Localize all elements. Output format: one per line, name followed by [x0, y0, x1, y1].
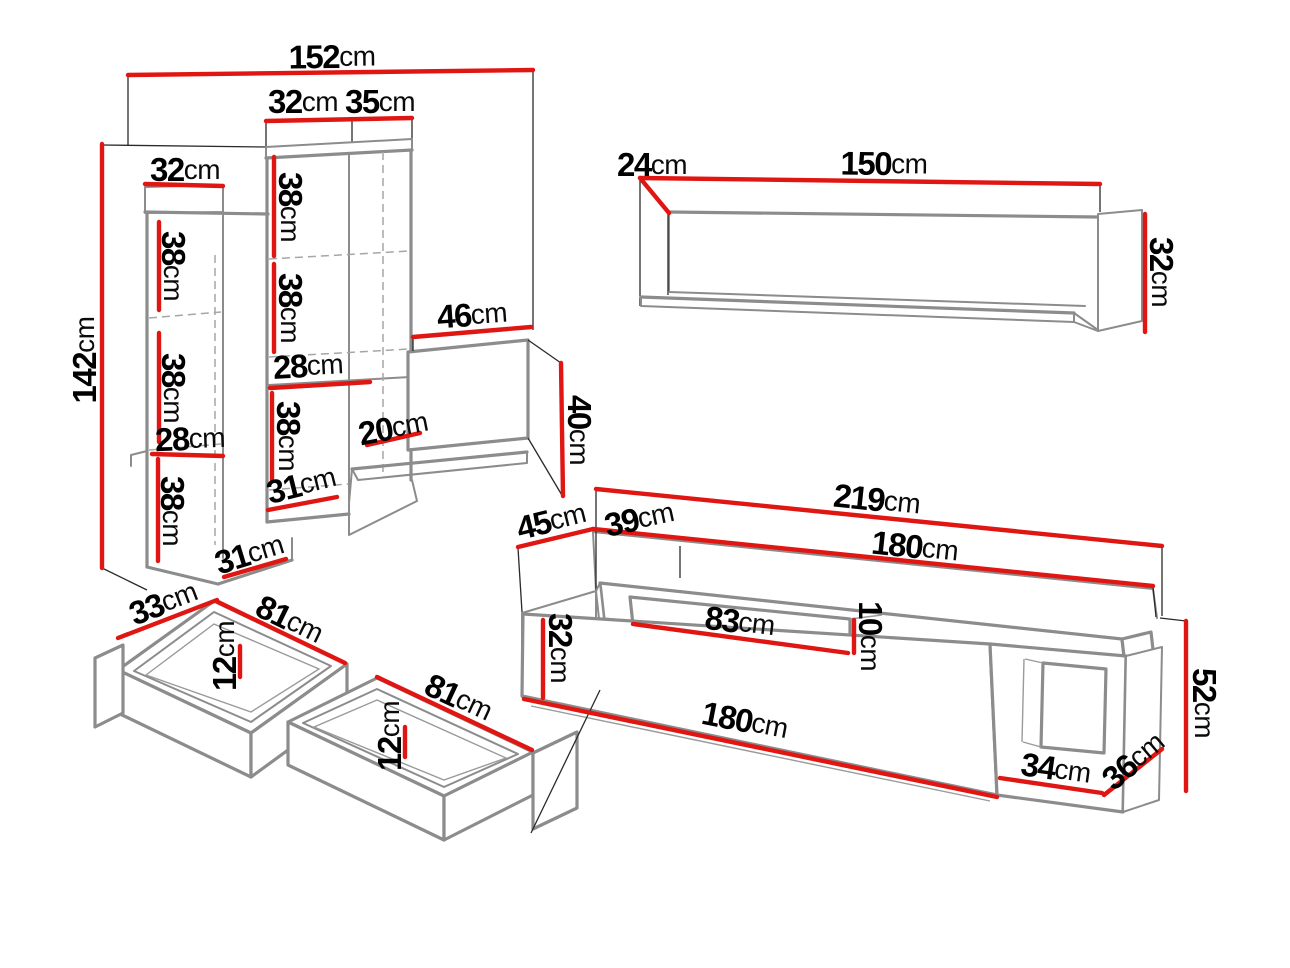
- dim-unit: cm: [737, 605, 777, 640]
- dim-unit: cm: [276, 206, 307, 242]
- dim-unit: cm: [470, 296, 508, 329]
- dim-line-24: [640, 178, 669, 213]
- wall-shelf-drawing: [640, 178, 1145, 332]
- furniture-dimension-diagram: 152cm 32cm 35cm 32cm 142cm 38cm 38cm 28c…: [0, 0, 1290, 968]
- dim-unit: cm: [306, 348, 344, 381]
- dim-num: 32: [150, 151, 185, 188]
- dim-num: 38: [273, 172, 310, 207]
- dim-unit: cm: [274, 435, 305, 471]
- dim-label-shelving-overall-width: 152cm: [288, 37, 375, 75]
- dim-label-shelf-depth-24: 24cm: [617, 146, 687, 183]
- compartment-opening: [1041, 663, 1106, 753]
- dim-num: 219: [832, 476, 887, 518]
- dim-unit: cm: [920, 531, 959, 566]
- dim-unit: cm: [1147, 271, 1178, 307]
- dim-label-shelf-height: 38cm: [273, 273, 310, 343]
- dim-unit: cm: [158, 510, 189, 546]
- back-panel-top-edge: [669, 212, 1098, 217]
- dim-num: 46: [436, 296, 473, 335]
- dim-num: 32: [543, 613, 580, 648]
- dim-num: 180: [870, 523, 924, 565]
- dim-num: 142: [66, 352, 103, 404]
- dim-unit: cm: [379, 86, 415, 117]
- drawer1-front-panel: [95, 645, 123, 727]
- dim-label-shelf-height-32: 32cm: [1144, 237, 1181, 307]
- dim-num: 28: [154, 420, 190, 458]
- shelf-hidden-line: [269, 251, 410, 259]
- dim-label-shelf-height: 38cm: [271, 401, 308, 471]
- dim-label-left-column-width: 32cm: [150, 151, 220, 188]
- dim-num: 32: [1144, 237, 1181, 272]
- dim-num: 24: [617, 146, 653, 183]
- extension-line: [1160, 618, 1186, 621]
- dim-label-drawer-height-12: 12cm: [371, 701, 408, 771]
- dim-num: 12: [371, 736, 408, 771]
- dim-num: 38: [273, 273, 310, 308]
- dim-unit: cm: [635, 496, 677, 534]
- dim-label-shelf-width-150: 150cm: [840, 144, 927, 182]
- left-column-top-edge: [145, 212, 268, 214]
- left-column-top-plate: [145, 185, 223, 213]
- dim-unit: cm: [276, 307, 307, 343]
- dim-num: 38: [271, 401, 308, 436]
- dim-unit: cm: [374, 701, 405, 737]
- dim-label-slot-height-10: 10cm: [853, 601, 890, 671]
- shelf-top-edge: [641, 297, 1074, 313]
- dim-unit: cm: [302, 86, 338, 117]
- dim-label-drawer-height-12: 12cm: [206, 621, 243, 691]
- dim-num: 38: [155, 476, 192, 511]
- dim-label-shelf-depth-28: 28cm: [154, 418, 225, 457]
- dim-num: 28: [272, 347, 309, 386]
- dim-unit: cm: [565, 429, 596, 465]
- dim-label-panel-height-40: 40cm: [562, 395, 599, 465]
- dim-unit: cm: [339, 40, 376, 71]
- dim-unit: cm: [882, 484, 921, 519]
- shelf-hidden-line: [149, 312, 221, 318]
- left-column-ledge: [131, 451, 147, 466]
- dim-num: 38: [156, 353, 193, 388]
- dim-unit: cm: [69, 317, 100, 353]
- drawers-drawing: [95, 600, 577, 840]
- dim-label-shelf-depth-28: 28cm: [272, 345, 344, 386]
- dim-label-shelf-height: 38cm: [273, 172, 310, 242]
- right-column-bottom-edge: [267, 514, 349, 522]
- dim-label-top-width-35: 35cm: [345, 83, 415, 120]
- dim-unit: cm: [209, 621, 240, 657]
- dim-label-overall-height: 142cm: [66, 317, 103, 404]
- dim-label-right-height-52: 52cm: [1187, 668, 1224, 738]
- dim-unit: cm: [159, 265, 190, 301]
- dim-label-shelf-height: 38cm: [156, 353, 193, 423]
- dim-label-shelf-height: 38cm: [155, 476, 192, 546]
- dim-unit: cm: [1190, 702, 1221, 738]
- dim-label-top-width-32: 32cm: [268, 83, 338, 120]
- dim-unit: cm: [159, 387, 190, 423]
- dim-unit: cm: [651, 149, 687, 180]
- right-column-base-step: [349, 480, 417, 535]
- dim-unit: cm: [1053, 752, 1093, 788]
- dim-unit: cm: [856, 635, 887, 671]
- extension-line: [102, 145, 266, 147]
- dim-num: 12: [206, 656, 243, 691]
- extension-line: [518, 548, 522, 612]
- dim-unit: cm: [546, 647, 577, 683]
- right-side-cap: [1098, 210, 1142, 331]
- dim-num: 150: [840, 144, 891, 182]
- dim-num: 10: [853, 601, 890, 635]
- diagram-canvas: 152cm 32cm 35cm 32cm 142cm 38cm 38cm 28c…: [0, 0, 1290, 968]
- dim-label-shelf-height: 38cm: [156, 231, 193, 301]
- dim-unit: cm: [184, 154, 220, 185]
- dim-num: 40: [562, 395, 599, 429]
- dim-num: 152: [288, 37, 340, 75]
- dim-num: 35: [345, 83, 380, 120]
- dim-num: 38: [156, 231, 193, 266]
- shelf-right-end: [1074, 313, 1098, 331]
- dim-unit: cm: [891, 148, 928, 179]
- extension-line: [102, 568, 147, 590]
- dim-label-cabinet-depth-45: 45cm: [513, 494, 590, 547]
- extension-line: [528, 340, 563, 497]
- dim-unit: cm: [188, 421, 225, 453]
- dim-label-cabinet-height-32: 32cm: [543, 613, 580, 683]
- dim-num: 52: [1187, 668, 1224, 703]
- dim-line-40: [561, 363, 563, 496]
- dim-num: 32: [268, 83, 303, 120]
